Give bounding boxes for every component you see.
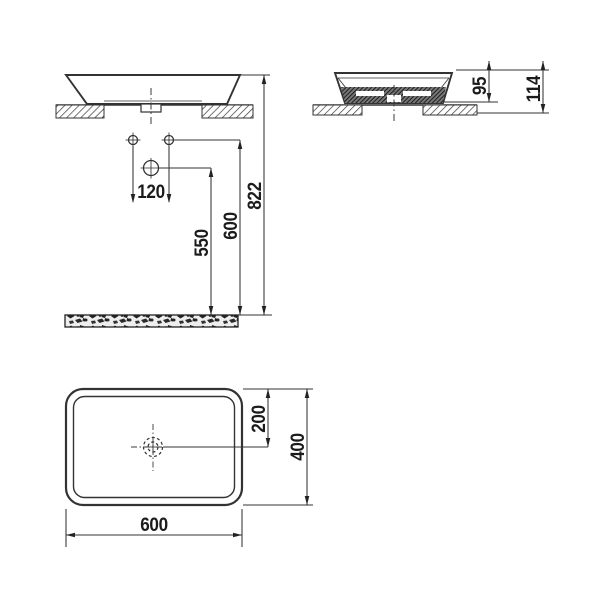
dim-label-total-height: 114 — [523, 75, 544, 102]
side-view: 95 114 — [313, 61, 549, 124]
drain-hole-front-icon — [141, 158, 162, 179]
countertop-side-hatch-left — [313, 105, 362, 115]
floor-hatch-strip — [65, 315, 238, 327]
countertop-front-hatch-right — [202, 105, 253, 118]
dim-label-above-counter: 95 — [469, 77, 490, 96]
dim-label-hole-spacing: 120 — [137, 181, 165, 202]
dim-basin-total-height: 114 — [523, 61, 545, 113]
dim-holes-height: 600 — [220, 140, 242, 315]
front-view: 120 550 600 822 — [56, 75, 272, 327]
countertop-front-hatch-left — [56, 105, 104, 118]
section-slot-left — [356, 91, 384, 96]
dim-depth: 400 — [287, 389, 309, 505]
dim-drain-height: 550 — [191, 168, 213, 315]
plan-view: 200 400 600 — [66, 389, 313, 547]
dim-width: 600 — [66, 514, 242, 537]
dim-label-depth: 400 — [287, 433, 308, 461]
dim-label-overall-height: 822 — [244, 182, 265, 210]
washbasin-drawing: 120 550 600 822 — [0, 0, 600, 600]
technical-drawing-page: 120 550 600 822 — [0, 0, 600, 600]
dim-label-drain-offset: 200 — [248, 405, 269, 433]
countertop-side-hatch-right — [423, 105, 477, 115]
dim-label-width: 600 — [140, 514, 168, 535]
section-slot-right — [403, 91, 431, 96]
dim-label-drain-height: 550 — [191, 229, 212, 257]
basin-front-outline — [66, 75, 240, 104]
dim-drain-from-back: 200 — [248, 389, 270, 447]
dim-basin-above-counter: 95 — [469, 61, 491, 102]
dim-label-holes-height: 600 — [220, 212, 241, 240]
faucet-hole-left-icon — [126, 133, 141, 148]
